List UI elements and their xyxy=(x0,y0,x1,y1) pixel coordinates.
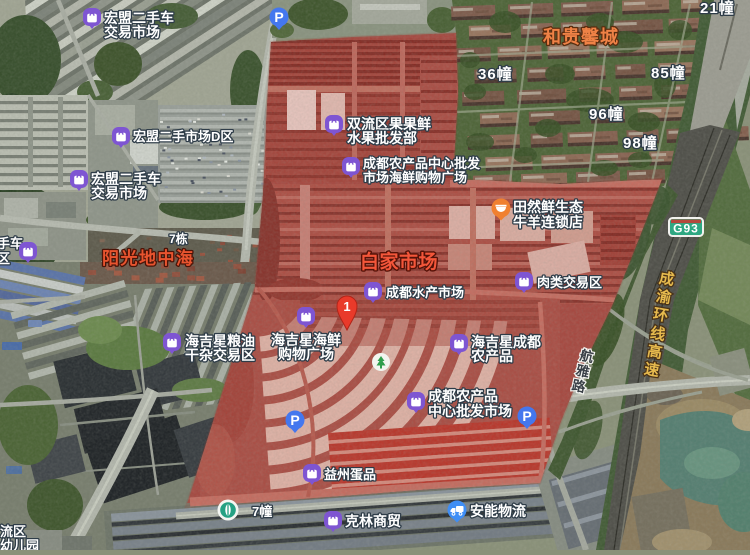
svg-text:宏盟二手市场D区: 宏盟二手市场D区 xyxy=(133,129,233,144)
svg-text:市场海鲜购物广场: 市场海鲜购物广场 xyxy=(363,170,467,185)
svg-text:环: 环 xyxy=(652,306,670,325)
svg-text:水果批发部: 水果批发部 xyxy=(347,130,417,146)
svg-text:干杂交易区: 干杂交易区 xyxy=(185,347,255,363)
svg-text:36幢: 36幢 xyxy=(478,65,513,83)
svg-text:P: P xyxy=(274,9,283,25)
svg-text:农产品: 农产品 xyxy=(470,348,513,364)
svg-text:购物广场: 购物广场 xyxy=(278,346,334,362)
svg-text:交易市场: 交易市场 xyxy=(104,24,160,40)
svg-text:克林商贸: 克林商贸 xyxy=(345,513,401,529)
svg-text:1: 1 xyxy=(343,299,350,314)
svg-text:田然鲜生态: 田然鲜生态 xyxy=(513,199,583,215)
svg-text:益州蛋品: 益州蛋品 xyxy=(324,467,376,482)
svg-text:98幢: 98幢 xyxy=(623,134,658,152)
svg-text:安能物流: 安能物流 xyxy=(470,503,526,519)
svg-text:中心批发市场: 中心批发市场 xyxy=(428,403,512,419)
svg-text:牛羊连锁店: 牛羊连锁店 xyxy=(513,214,583,230)
svg-text:速: 速 xyxy=(643,360,661,380)
svg-text:7栋: 7栋 xyxy=(169,231,188,246)
svg-text:高: 高 xyxy=(646,342,664,362)
svg-text:成都农产品: 成都农产品 xyxy=(428,388,498,404)
svg-text:区: 区 xyxy=(0,251,10,266)
svg-text:白家市场: 白家市场 xyxy=(360,250,438,273)
svg-text:成都农产品中心批发: 成都农产品中心批发 xyxy=(363,156,481,171)
svg-text:P: P xyxy=(522,408,531,424)
svg-text:成: 成 xyxy=(658,269,676,289)
svg-text:21幢: 21幢 xyxy=(700,0,735,17)
svg-text:成都水产市场: 成都水产市场 xyxy=(386,285,464,300)
svg-text:P: P xyxy=(290,412,299,428)
svg-text:肉类交易区: 肉类交易区 xyxy=(537,275,602,290)
svg-text:7幢: 7幢 xyxy=(252,504,272,519)
svg-text:幼儿园: 幼儿园 xyxy=(0,538,39,550)
svg-text:阳光地中海: 阳光地中海 xyxy=(102,248,195,268)
svg-text:G93: G93 xyxy=(673,222,699,236)
svg-text:96幢: 96幢 xyxy=(589,105,624,123)
svg-text:85幢: 85幢 xyxy=(651,64,686,82)
svg-text:交易市场: 交易市场 xyxy=(91,185,147,201)
svg-text:流区: 流区 xyxy=(0,524,26,539)
svg-text:和贵馨城: 和贵馨城 xyxy=(543,26,619,47)
svg-text:线: 线 xyxy=(649,324,667,344)
